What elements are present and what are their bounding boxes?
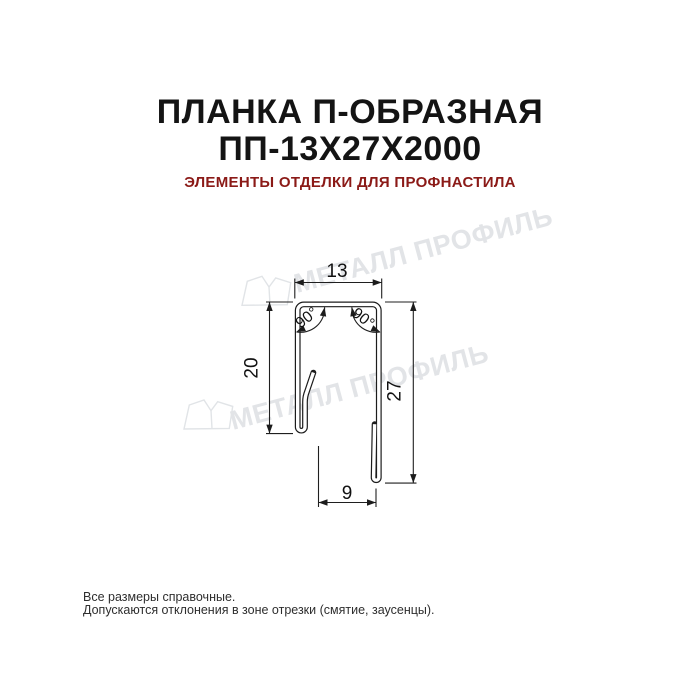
- dimension-label-right: 27: [385, 380, 406, 401]
- watermark-upper: МЕТАЛЛ ПРОФИЛЬ: [242, 201, 556, 305]
- metall-profil-logo-icon: [242, 276, 291, 305]
- watermark-text: МЕТАЛЛ ПРОФИЛЬ: [291, 201, 556, 299]
- watermark-text: МЕТАЛЛ ПРОФИЛЬ: [227, 338, 492, 436]
- footer-notes: Все размеры справочные. Допускаются откл…: [83, 591, 435, 616]
- dimension-label-top: 13: [326, 261, 347, 282]
- dimension-bottom-opening: 9: [319, 446, 377, 507]
- footer-note-2: Допускаются отклонения в зоне отрезки (с…: [83, 604, 435, 616]
- footer-note-1: Все размеры справочные.: [83, 591, 435, 603]
- metall-profil-logo-icon: [184, 400, 233, 429]
- dimension-label-bottom: 9: [342, 483, 353, 504]
- watermark-lower: МЕТАЛЛ ПРОФИЛЬ: [184, 338, 492, 436]
- dimension-right-height: 27: [385, 302, 417, 483]
- dimension-label-left: 20: [242, 357, 263, 378]
